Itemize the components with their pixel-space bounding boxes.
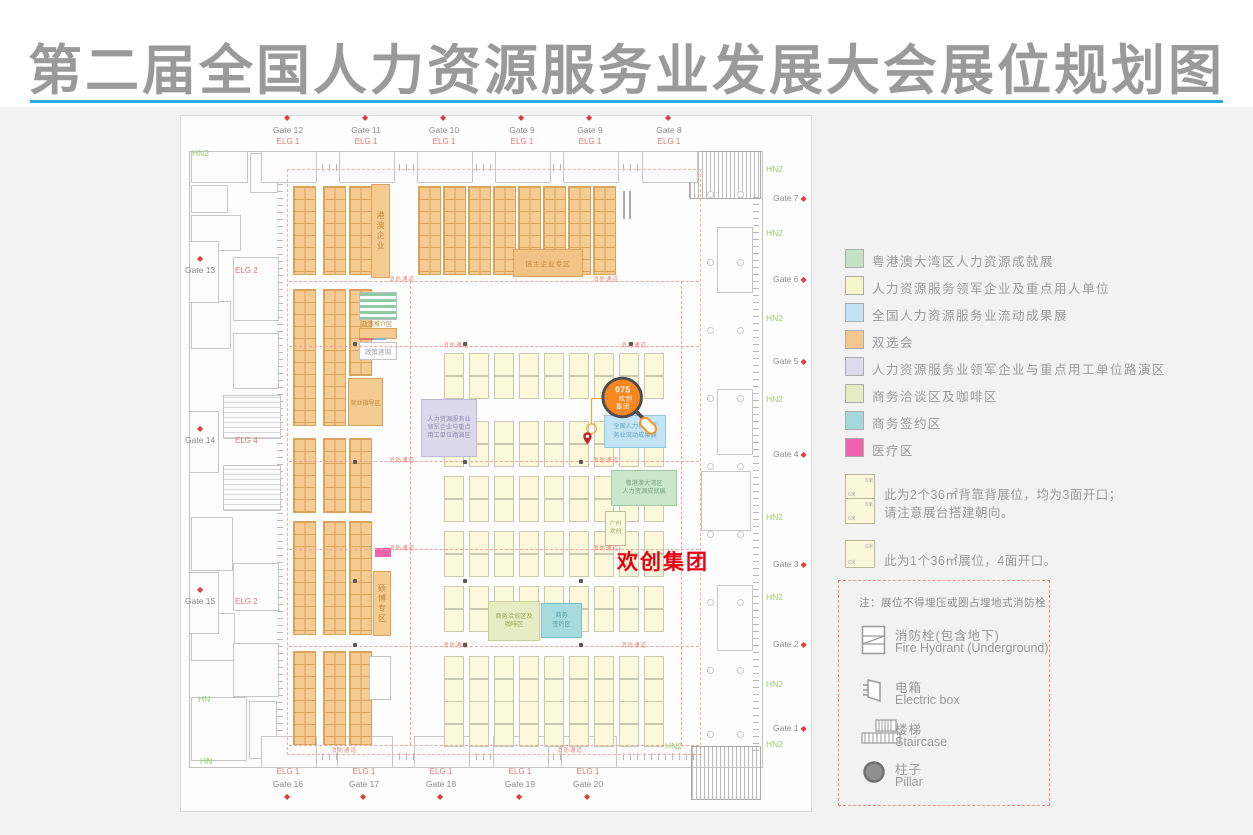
pillar-dot <box>707 667 714 674</box>
gate-label-left: Gate 15 <box>185 596 231 606</box>
pillar-dot <box>737 731 744 738</box>
elg-label-top: ELG 1 <box>419 137 469 146</box>
booth-highlight-circle <box>587 424 597 434</box>
notice-title: 注：展位不得埋压或圈占埋地式消防栓 <box>859 595 1046 610</box>
hall-pillar <box>353 342 357 346</box>
gate-label-top: Gate 11 <box>341 125 391 135</box>
electric-box-icon <box>861 677 883 708</box>
legend-swatch <box>845 303 864 322</box>
gate-label-bottom: Gate 17 <box>339 779 389 789</box>
fire-lane-label: 消防通道 <box>557 746 583 754</box>
fire-lane-label: 消防通道 <box>389 456 415 464</box>
pillar-dot <box>707 259 714 266</box>
gate-marker-icon: ◆ <box>362 114 368 122</box>
booth-note-text: 此为1个36㎡展位，4面开口。 <box>884 550 1057 569</box>
notice-item-en: Fire Hydrant (Underground) <box>895 641 1049 655</box>
notice-item-en: Staircase <box>895 735 947 749</box>
gate-label-right: Gate 6◆ <box>773 274 807 284</box>
pillar-dot <box>707 327 714 334</box>
gate-label-right: Gate 2◆ <box>773 639 807 649</box>
notice-item-en: Electric box <box>895 693 960 707</box>
conference-room <box>223 395 281 439</box>
elg-label-top: ELG 1 <box>341 137 391 146</box>
fire-lane-label: 消防通道 <box>593 275 619 283</box>
notice-box: 注：展位不得埋压或圈占埋地式消防栓 消防栓(包含地下)Fire Hydrant … <box>838 580 1050 806</box>
side-room <box>717 227 753 293</box>
gate-label-right: Gate 7◆ <box>773 193 807 203</box>
gate-label-top: Gate 12 <box>263 125 313 135</box>
gate-marker-icon: ◆ <box>801 194 807 203</box>
conference-room <box>223 465 281 511</box>
gate-label-left: Gate 14 <box>185 435 231 445</box>
gate-marker-icon: ◆ <box>197 586 203 594</box>
side-room <box>191 301 231 349</box>
gate-label-right: Gate 1◆ <box>773 723 807 733</box>
gate-label-left: Gate 13 <box>185 265 231 275</box>
legend-label: 人力资源服务领军企业及重点用人单位 <box>872 278 1110 297</box>
gate-marker-icon: ◆ <box>518 114 524 122</box>
gate-label-bottom: Gate 18 <box>416 779 466 789</box>
elg-label-top: ELG 1 <box>565 137 615 146</box>
gate-marker-icon: ◆ <box>284 114 290 122</box>
size-label: 6米 <box>865 477 873 484</box>
gate-label-bottom: Gate 20 <box>563 779 613 789</box>
hall-pillar <box>463 460 467 464</box>
corridor-label-hn2: HN2 <box>766 679 783 689</box>
pillar-dot <box>707 191 714 198</box>
legend-label: 商务签约区 <box>872 413 942 432</box>
hall-pillar <box>463 643 467 647</box>
elg-label-top: ELG 1 <box>497 137 547 146</box>
pillar-icon <box>861 759 887 790</box>
size-label: 6米 <box>865 543 873 550</box>
page-title: 第二届全国人力资源服务业发展大会展位规划图 <box>0 26 1253 105</box>
gate-marker-icon: ◆ <box>584 793 590 801</box>
pin-company-label: 欢创集团 <box>617 546 709 576</box>
legend-swatch <box>845 276 864 295</box>
corridor-label-hn2: HN2 <box>192 148 209 158</box>
magnifier-grip <box>638 416 658 436</box>
corridor-label-hn2: HN2 <box>766 313 783 323</box>
pillar-dot <box>737 667 744 674</box>
gate-marker-icon: ◆ <box>516 793 522 801</box>
pillar-dot <box>737 599 744 606</box>
gate-marker-icon: ◆ <box>197 255 203 263</box>
side-room <box>233 643 279 697</box>
elg-label-bottom: ELG 1 <box>416 767 466 776</box>
hall-pillar <box>353 643 357 647</box>
hall-pillar <box>579 643 583 647</box>
corner-structure <box>691 746 761 800</box>
corridor-label-hn2: HN2 <box>665 741 682 751</box>
corridor-label-hn: HN <box>198 694 210 704</box>
fire-hydrant-icon <box>861 625 887 660</box>
corridor-label-hn2: HN2 <box>766 228 783 238</box>
hall-pillar <box>463 579 467 583</box>
fire-lane-label: 消防通道 <box>621 641 647 649</box>
gate-marker-icon: ◆ <box>801 640 807 649</box>
elg-label-bottom: ELG 1 <box>563 767 613 776</box>
elg-label-left: ELG 4 <box>235 436 275 445</box>
elg-label-bottom: ELG 1 <box>339 767 389 776</box>
gate-marker-icon: ◆ <box>586 114 592 122</box>
gate-label-top: Gate 9 <box>565 125 615 135</box>
legend-label: 医疗区 <box>872 440 914 459</box>
elg-label-bottom: ELG 1 <box>263 767 313 776</box>
location-pin-icon <box>583 432 591 445</box>
legend-label: 粤港澳大湾区人力资源成就展 <box>872 251 1054 270</box>
gate-marker-icon: ◆ <box>801 275 807 284</box>
gate-marker-icon: ◆ <box>284 793 290 801</box>
fire-lane-label: 消防通道 <box>389 544 415 552</box>
hall-pillar <box>353 460 357 464</box>
poster: 第二届全国人力资源服务业发展大会展位规划图 港澳企业 硕博专区 就业指导区 链主… <box>0 0 1253 835</box>
notice-item-en: Pillar <box>895 775 923 789</box>
location-pin-hole <box>586 435 589 438</box>
callout-connector-line <box>592 398 604 423</box>
booth-note-text: 此为2个36㎡背靠背展位，均为3面开口； <box>884 484 1122 503</box>
corridor-label-hn2: HN2 <box>766 739 783 749</box>
side-room <box>233 333 279 389</box>
elg-label-bottom: ELG 1 <box>495 767 545 776</box>
gate-marker-icon: ◆ <box>437 793 443 801</box>
legend-label: 全国人力资源服务业流动成果展 <box>872 305 1068 324</box>
pillar-dot <box>707 731 714 738</box>
gate-marker-icon: ◆ <box>801 724 807 733</box>
gate-marker-icon: ◆ <box>197 425 203 433</box>
hall-pillar <box>353 579 357 583</box>
fire-lane-label: 消防通道 <box>331 746 357 754</box>
legend-label: 人力资源服务业领军企业与重点用工单位路演区 <box>872 359 1166 378</box>
gate-marker-icon: ◆ <box>665 114 671 122</box>
gate-label-bottom: Gate 19 <box>495 779 545 789</box>
pillar-dot <box>737 259 744 266</box>
fire-lane-horizontal <box>289 281 699 282</box>
gate-label-top: Gate 9 <box>497 125 547 135</box>
legend-swatch <box>845 249 864 268</box>
gate-marker-icon: ◆ <box>360 793 366 801</box>
corridor-label-hn2: HN2 <box>766 164 783 174</box>
pillar-dot <box>737 327 744 334</box>
gate-label-top: Gate 8 <box>644 125 694 135</box>
title-underline <box>30 100 1223 103</box>
elg-label-top: ELG 1 <box>263 137 313 146</box>
gate-label-bottom: Gate 16 <box>263 779 313 789</box>
elg-label-left: ELG 2 <box>235 597 275 606</box>
side-room <box>191 185 228 213</box>
booth-note-text: 请注意展台搭建朝向。 <box>884 502 1014 521</box>
gate-marker-icon: ◆ <box>440 114 446 122</box>
legend-label: 商务洽谈区及咖啡区 <box>872 386 998 405</box>
legend-label: 双选会 <box>872 332 914 351</box>
gate-label-top: Gate 10 <box>419 125 469 135</box>
fire-lane-vertical <box>410 281 411 745</box>
side-room <box>717 585 753 651</box>
elg-label-top: ELG 1 <box>644 137 694 146</box>
corridor-label-hn: HN <box>200 756 212 766</box>
pillar-dot <box>737 191 744 198</box>
callout-booth-number: 075 <box>615 384 630 394</box>
corridor-label-hn2: HN2 <box>766 592 783 602</box>
side-room <box>191 697 247 761</box>
hall-pillar <box>463 342 467 346</box>
side-room <box>191 517 233 571</box>
fire-lane-label: 消防通道 <box>389 275 415 283</box>
floorplan-panel: 港澳企业 硕博专区 就业指导区 链主企业专区 政策推介区 政策咨询 人力资源服务… <box>180 115 812 812</box>
size-label: 6米 <box>865 501 873 508</box>
elg-label-left: ELG 2 <box>235 266 275 275</box>
pillar-dot <box>707 599 714 606</box>
